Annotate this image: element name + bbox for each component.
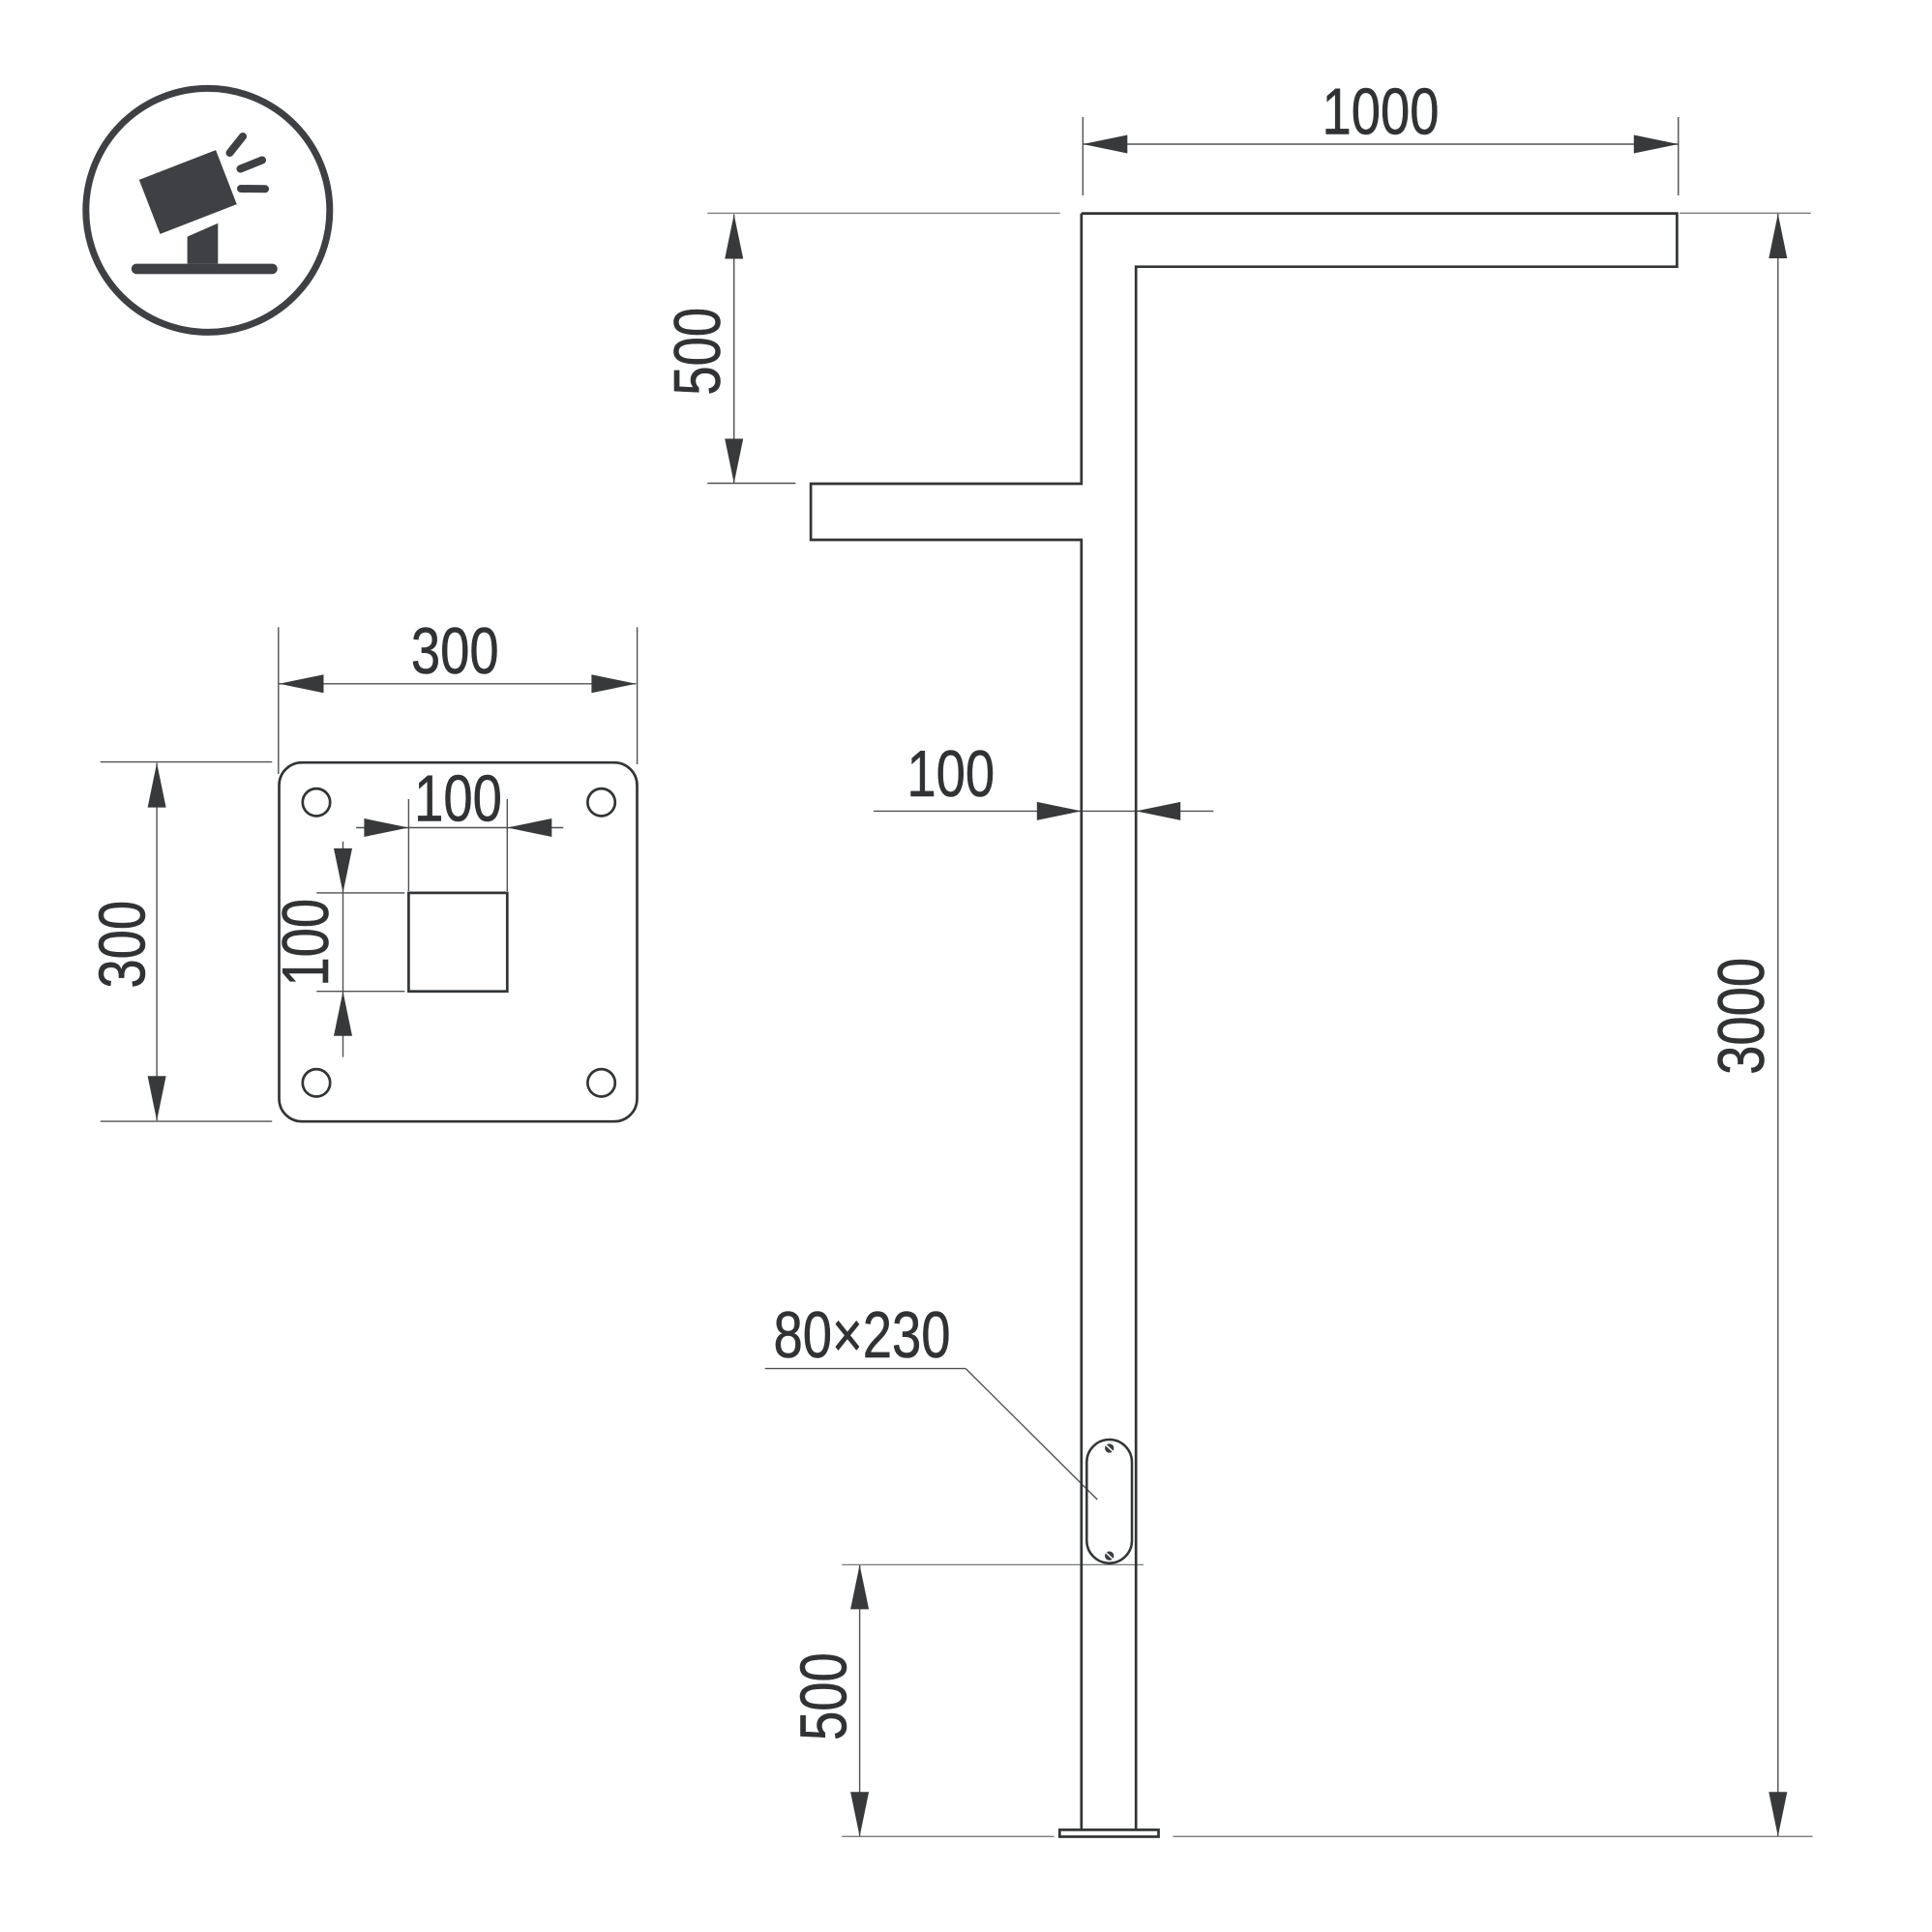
svg-text:300: 300	[86, 901, 160, 989]
svg-text:3000: 3000	[1705, 958, 1778, 1075]
svg-text:100: 100	[907, 737, 995, 811]
svg-text:300: 300	[411, 614, 499, 688]
svg-text:1000: 1000	[1323, 75, 1440, 149]
svg-text:100: 100	[269, 899, 342, 987]
svg-text:100: 100	[414, 762, 502, 836]
svg-text:500: 500	[661, 308, 734, 396]
svg-text:500: 500	[788, 1652, 861, 1740]
svg-text:80×230: 80×230	[773, 1298, 950, 1372]
